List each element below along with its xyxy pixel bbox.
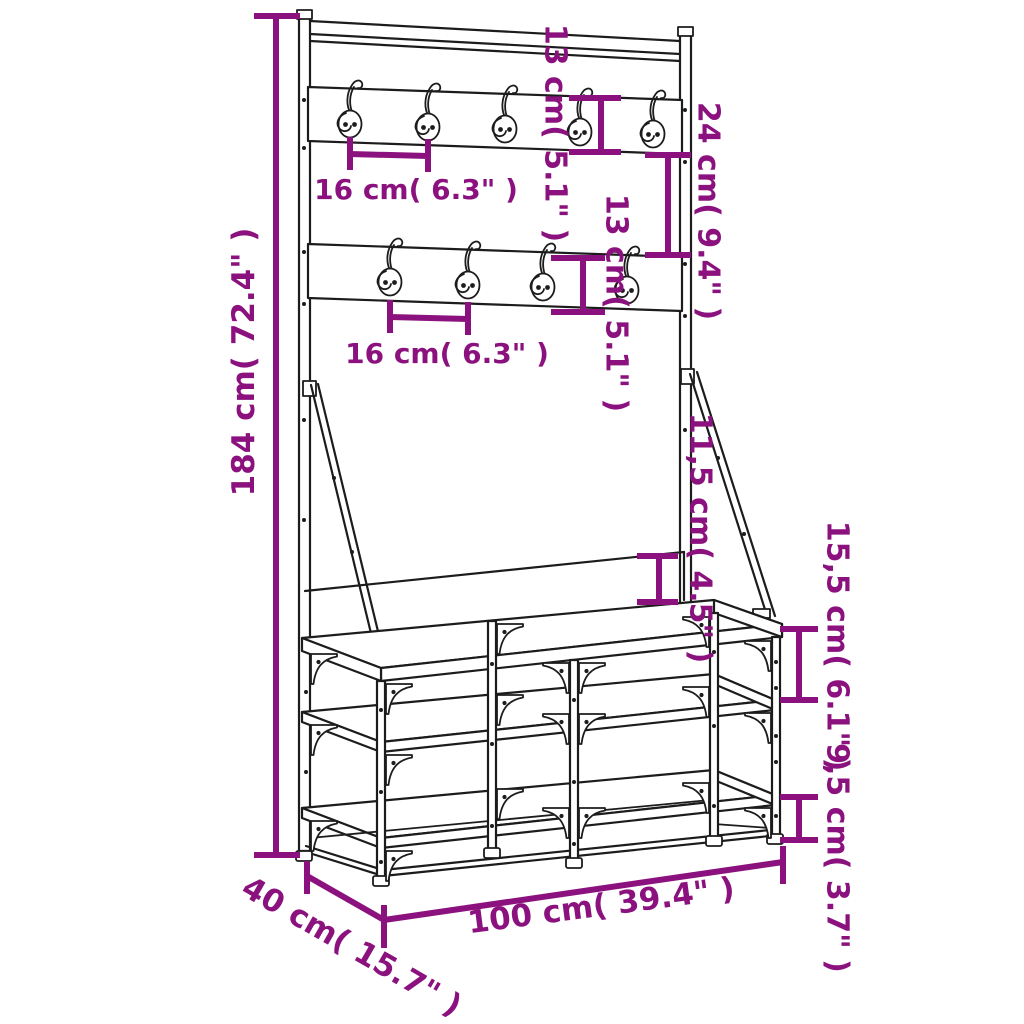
dim-label-width: 100 cm( 39.4" ) [466, 870, 737, 941]
top-bar [310, 21, 680, 61]
dim-label-hook-spacing-top: 16 cm( 6.3" ) [314, 173, 518, 206]
dim-label-top-rail-height: 13 cm( 5.1" ) [538, 24, 573, 242]
dim-label-hook-spacing-bottom: 16 cm( 6.3" ) [345, 337, 549, 370]
dim-label-depth: 40 cm( 15.7" ) [236, 869, 468, 1024]
left-brace [303, 381, 383, 655]
dim-label-bottom-rail-height: 13 cm( 5.1" ) [599, 194, 634, 412]
dim-shelf-to-floor: 9,5 cm( 3.7" ) [780, 743, 855, 973]
dim-label-seat-to-shelf: 15,5 cm( 6.1" ) [820, 521, 855, 772]
bench-shelf-middle [302, 674, 775, 752]
dim-width: 100 cm( 39.4" ) [384, 846, 783, 948]
dim-label-backrest-height: 11,5 cm( 4.5" ) [683, 413, 718, 664]
dim-label-total-height: 184 cm( 72.4" ) [226, 228, 262, 497]
dim-seat-to-shelf: 15,5 cm( 6.1" ) [780, 521, 855, 772]
dim-total-height: 184 cm( 72.4" ) [226, 16, 300, 855]
dim-hook-spacing-bottom: 16 cm( 6.3" ) [345, 300, 549, 370]
dim-label-rail-gap: 24 cm( 9.4" ) [691, 102, 726, 320]
dim-label-shelf-to-floor: 9,5 cm( 3.7" ) [820, 743, 855, 973]
dimension-annotations: 184 cm( 72.4" ) 13 cm( 5.1" ) 24 cm( 9.4… [226, 16, 855, 1024]
dim-depth: 40 cm( 15.7" ) [236, 861, 468, 1024]
clothes-rack-dimension-diagram: 184 cm( 72.4" ) 13 cm( 5.1" ) 24 cm( 9.4… [0, 0, 1024, 1024]
